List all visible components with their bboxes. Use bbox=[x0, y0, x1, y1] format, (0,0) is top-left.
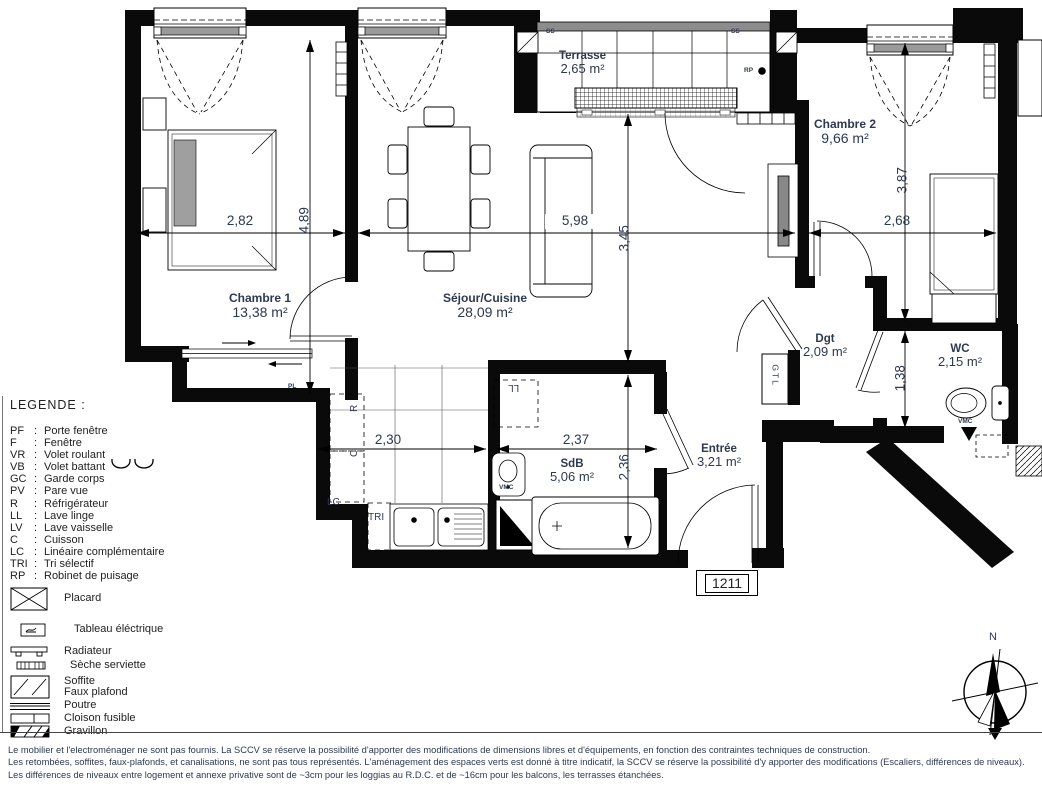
legend-symbols: Placard Tableau éléctrique Radiateur Sèc… bbox=[10, 585, 310, 738]
room-area: 3,21 m² bbox=[664, 455, 774, 469]
dim-chambre2-height: 3,87 bbox=[896, 150, 911, 210]
annotation-pl: PL bbox=[288, 383, 296, 390]
room-label-chambre2: Chambre 2 9,66 m² bbox=[785, 118, 905, 146]
room-area: 2,15 m² bbox=[905, 355, 1015, 369]
annotation-lc: LC bbox=[327, 498, 340, 509]
room-label-sejour: Séjour/Cuisine 28,09 m² bbox=[425, 292, 545, 320]
radiator-chambre2-icon bbox=[984, 44, 995, 98]
bathtub-icon bbox=[532, 497, 659, 555]
compass-icon bbox=[952, 649, 1038, 740]
legend-title: LEGENDE : bbox=[10, 398, 320, 412]
annotation-refrigerateur: R bbox=[350, 405, 361, 412]
legend-symbol-row: Radiateur bbox=[10, 644, 310, 659]
dim-chambre1-width: 2,82 bbox=[210, 214, 270, 229]
toilet-icon bbox=[946, 386, 1009, 441]
room-label-sdb: SdB 5,06 m² bbox=[517, 458, 627, 484]
dim-cuisine-width: 2,30 bbox=[358, 433, 418, 448]
legend-symbol-row: Poutre bbox=[10, 700, 310, 712]
footer-line-3: Les différences de niveaux entre logemen… bbox=[8, 769, 1038, 781]
radiateur-icon bbox=[10, 646, 48, 658]
dim-chambre2-width: 2,68 bbox=[867, 214, 927, 229]
legend-symbol-row: Sèche serviette bbox=[10, 659, 310, 672]
room-label-terrasse: Terrasse 2,65 m² bbox=[540, 50, 625, 76]
legend-row: LLLave linge bbox=[10, 510, 320, 522]
bed-double-icon bbox=[143, 98, 276, 270]
legend-row: RPRobinet de puisage bbox=[10, 570, 320, 582]
legend-row: LCLinéaire complémentaire bbox=[10, 546, 320, 558]
footer-separator bbox=[0, 732, 1042, 733]
dim-wc-height: 1,38 bbox=[894, 348, 909, 408]
window-chambre2-icon bbox=[867, 25, 953, 126]
footer-notes: Le mobilier et l'electroménager ne sont … bbox=[8, 744, 1038, 781]
volet-battant-icon bbox=[110, 458, 156, 474]
kitchen-sink-icon bbox=[390, 504, 488, 550]
legend-left-border bbox=[2, 396, 3, 732]
annotation-cuisson: C bbox=[350, 450, 361, 457]
annotation-vmc-wc: VMC bbox=[958, 418, 972, 425]
window-chambre1-icon bbox=[154, 8, 246, 114]
annotation-rp: RP bbox=[744, 67, 753, 74]
dining-table-icon bbox=[388, 107, 490, 271]
lot-number: 1211 bbox=[705, 574, 749, 593]
room-area: 28,09 m² bbox=[425, 305, 545, 320]
gravel-area bbox=[1016, 446, 1042, 476]
tableau-electrique-icon bbox=[20, 623, 46, 637]
footer-line-1: Le mobilier et l'electroménager ne sont … bbox=[8, 744, 1038, 756]
dim-sejour-width: 5,98 bbox=[545, 214, 605, 229]
legend-symbol-row: SoffiteFaux plafond bbox=[10, 674, 310, 700]
closet-chambre1-icon bbox=[182, 340, 312, 367]
dim-chambre1-height: 4,89 bbox=[298, 190, 313, 250]
room-name: Chambre 1 bbox=[200, 292, 320, 305]
compass-north-label: N bbox=[983, 632, 1003, 644]
annotation-vmc-sdb: VMC bbox=[499, 484, 513, 491]
legend: LEGENDE : PFPorte fenêtre FFenêtre VRVol… bbox=[10, 398, 320, 582]
legend-symbol-row: Placard bbox=[10, 585, 310, 613]
room-label-entree: Entrée 3,21 m² bbox=[664, 443, 774, 469]
dim-sejour-height: 3,45 bbox=[618, 208, 633, 268]
lot-number-box: 1211 bbox=[696, 570, 758, 596]
seche-serviette-icon bbox=[16, 661, 46, 671]
dim-sdb-height: 2,36 bbox=[618, 437, 633, 497]
room-label-chambre1: Chambre 1 13,38 m² bbox=[200, 292, 320, 320]
room-area: 2,09 m² bbox=[770, 345, 880, 359]
legend-row: VBVolet battant bbox=[10, 461, 320, 473]
legend-row: VRVolet roulant bbox=[10, 449, 320, 461]
legend-row: CCuisson bbox=[10, 534, 320, 546]
radiator-chambre1-icon bbox=[336, 42, 347, 96]
legend-row: PFPorte fenêtre bbox=[10, 425, 320, 437]
balcony-rail bbox=[1018, 40, 1042, 116]
room-area: 9,66 m² bbox=[785, 131, 905, 146]
room-name: Séjour/Cuisine bbox=[425, 292, 545, 305]
legend-row: TRITri sélectif bbox=[10, 558, 320, 570]
legend-symbol-row: Tableau éléctrique bbox=[10, 619, 310, 640]
room-label-wc: WC 2,15 m² bbox=[905, 343, 1015, 369]
dim-sdb-width: 2,37 bbox=[546, 433, 606, 448]
tv-cabin-icon bbox=[768, 164, 798, 257]
legend-row: FFenêtre bbox=[10, 437, 320, 449]
legend-row: PVPare vue bbox=[10, 485, 320, 497]
bed-single-icon bbox=[930, 174, 998, 323]
poutre-icon bbox=[10, 702, 50, 711]
room-area: 2,65 m² bbox=[540, 62, 625, 76]
room-area: 5,06 m² bbox=[517, 470, 627, 484]
annotation-ss-left: SS bbox=[546, 28, 555, 35]
annotation-ss-right: SS bbox=[731, 28, 740, 35]
annotation-tri: TRI bbox=[368, 513, 384, 524]
legend-abbreviations: PFPorte fenêtre FFenêtre VRVolet roulant… bbox=[10, 425, 320, 582]
legend-symbol-row: Cloison fusible bbox=[10, 712, 310, 725]
legend-row: LVLave vaisselle bbox=[10, 522, 320, 534]
room-area: 13,38 m² bbox=[200, 305, 320, 320]
cloison-fusible-icon bbox=[10, 713, 50, 724]
annotation-gtl: GTL bbox=[770, 351, 779, 401]
floor-plan-page: Terrasse 2,65 m² Chambre 1 13,38 m² Séjo… bbox=[0, 0, 1042, 800]
legend-row: RRéfrigérateur bbox=[10, 498, 320, 510]
window-sejour-icon bbox=[358, 8, 446, 112]
footer-line-2: Les retombées, soffites, faux-plafonds, … bbox=[8, 756, 1038, 768]
room-label-dgt: Dgt 2,09 m² bbox=[770, 333, 880, 359]
placard-icon bbox=[10, 587, 48, 611]
room-name: Chambre 2 bbox=[785, 118, 905, 131]
legend-row: GCGarde corps bbox=[10, 473, 320, 485]
soffite-faux-plafond-icon bbox=[10, 675, 50, 699]
annotation-lave-linge: LL bbox=[508, 381, 519, 392]
